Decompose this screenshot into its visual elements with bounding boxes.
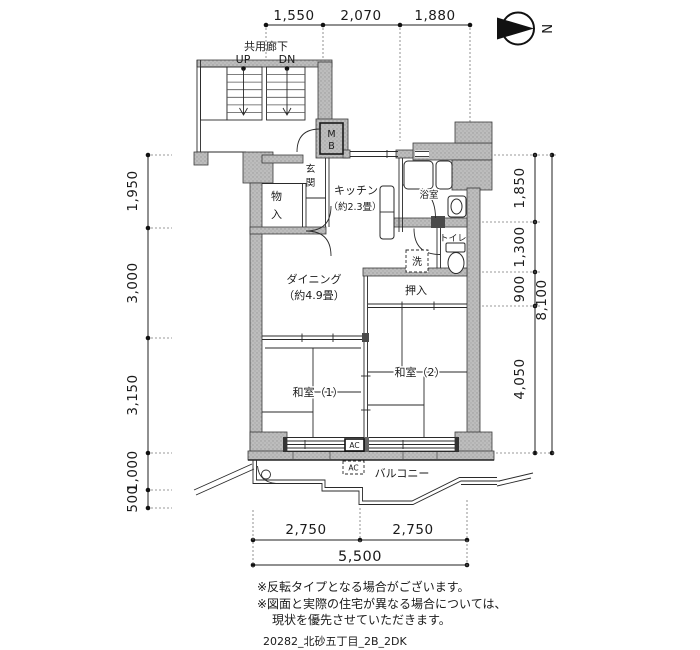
entrance-label-char1: 玄 <box>306 163 316 175</box>
dim-left-3: 3,150 <box>125 374 141 415</box>
kitchen-label: キッチン <box>334 184 378 197</box>
ac-outdoor-label: AC <box>348 464 358 473</box>
stairwell: 共用廊下 UP DN <box>194 39 332 165</box>
notes-block: ※反転タイプとなる場合がございます。 ※図面と実際の住宅が異なる場合については、… <box>257 579 506 648</box>
dim-bottom-1: 2,750 <box>285 522 326 538</box>
meter-box-m: M <box>327 129 335 140</box>
dim-right-2: 1,300 <box>512 226 528 267</box>
ac-indoor-label: AC <box>349 441 359 450</box>
ac-outdoor-box: AC <box>343 461 364 474</box>
toilet-fixture <box>446 243 465 274</box>
ac-indoor-box: AC <box>345 439 364 451</box>
japanese-room2-label: 和室（2） <box>395 365 446 379</box>
unit-walls <box>243 119 494 460</box>
japanese-room1-label: 和室（1） <box>293 385 344 399</box>
dim-right-3: 900 <box>512 275 528 302</box>
floor-plan-page: N 1,550 2,070 1,880 1,950 3,000 3,150 1,… <box>0 0 700 650</box>
storage-label-char1: 物 <box>271 189 282 203</box>
balcony-window-band <box>283 437 459 452</box>
stairs-down-label: DN <box>279 53 296 66</box>
dim-top-3: 1,880 <box>414 8 455 24</box>
floor-plan-drawing: N 1,550 2,070 1,880 1,950 3,000 3,150 1,… <box>0 0 700 650</box>
dimension-left: 1,950 3,000 3,150 1,000 500 <box>125 153 172 513</box>
wash-basin <box>448 196 466 217</box>
dining-size-label: （約4.9畳） <box>283 288 345 302</box>
note-line-3: 現状を優先させていただきます。 <box>272 613 451 627</box>
washer-label: 洗 <box>412 256 422 268</box>
closet-label: 押入 <box>405 283 427 297</box>
dim-left-5: 500 <box>125 485 141 512</box>
north-label: N <box>538 24 554 35</box>
dim-left-2: 3,000 <box>125 262 141 303</box>
plan-id: 20282_北砂五丁目_2B_2DK <box>263 635 408 648</box>
dim-bottom-total: 5,500 <box>338 549 382 565</box>
storage-door-swing-lower <box>306 231 331 256</box>
dim-left-1: 1,950 <box>125 170 141 211</box>
dim-right-total: 8,100 <box>534 279 550 320</box>
dining-label: ダイニング <box>287 272 342 286</box>
dim-right-1: 1,850 <box>512 167 528 208</box>
balcony-label: バルコニー <box>375 467 430 480</box>
kitchen-counter <box>380 186 394 239</box>
note-line-2: ※図面と実際の住宅が異なる場合については、 <box>257 596 506 611</box>
balcony-drain <box>262 470 271 479</box>
entrance-label-char2: 関 <box>306 178 316 189</box>
dim-top-1: 1,550 <box>273 8 314 24</box>
toilet-label: トイレ <box>439 234 466 244</box>
stairs-up-label: UP <box>236 53 251 66</box>
bathtub <box>404 161 433 189</box>
room-labels: 玄 関 物 入 キッチン （約2.3畳） 浴室 トイレ 洗 ダイニング （約4.… <box>271 163 467 480</box>
meter-box-b: B <box>328 141 335 152</box>
dim-bottom-2: 2,750 <box>392 522 433 538</box>
kitchen-size-label: （約2.3畳） <box>328 201 381 213</box>
north-compass: N <box>497 13 554 45</box>
dim-top-2: 2,070 <box>340 8 381 24</box>
corridor-label: 共用廊下 <box>244 39 288 53</box>
balcony-continues-right <box>499 473 533 481</box>
note-line-1: ※反転タイプとなる場合がございます。 <box>257 579 470 594</box>
storage-label-char2: 入 <box>271 208 282 221</box>
dimension-bottom: 2,750 2,750 5,500 <box>251 500 470 568</box>
dimension-right: 1,850 1,300 900 4,050 8,100 <box>470 153 556 456</box>
bath-label: 浴室 <box>419 189 438 201</box>
bath-counter <box>436 161 452 189</box>
dim-right-4: 4,050 <box>512 358 528 399</box>
balcony-continues-left <box>194 464 252 490</box>
